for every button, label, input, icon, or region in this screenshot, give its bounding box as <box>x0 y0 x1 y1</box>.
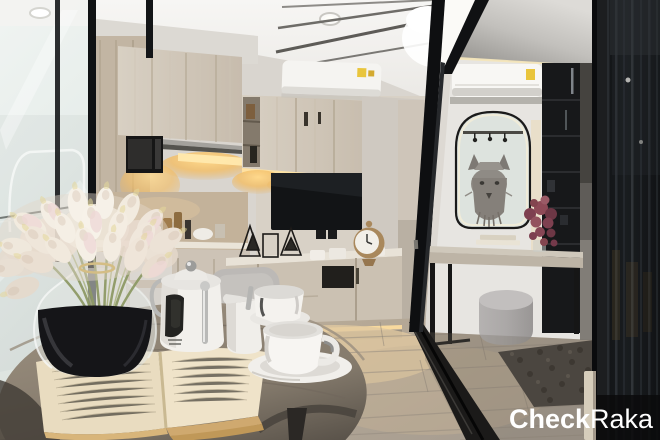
svg-text:CheckRaka: CheckRaka <box>509 404 654 434</box>
